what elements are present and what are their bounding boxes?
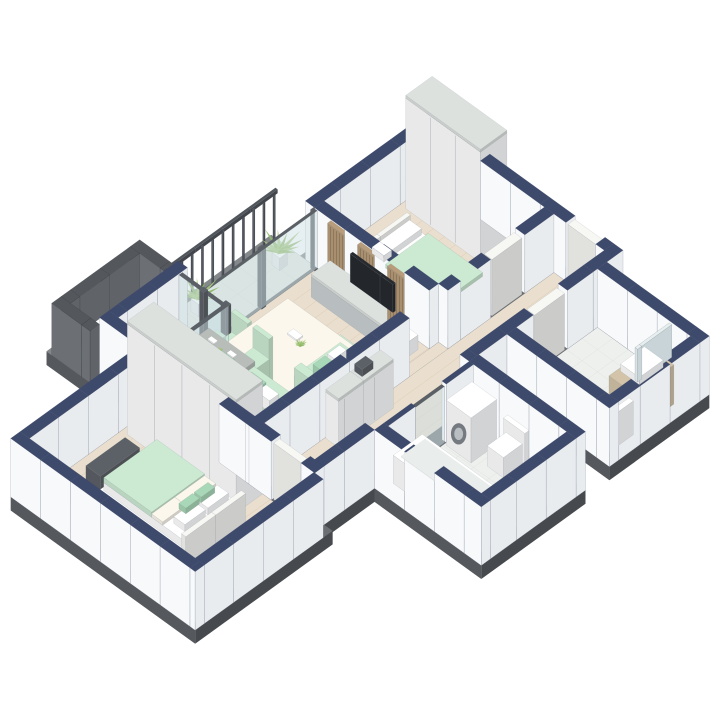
balcony-railing-rail [193,227,222,252]
balcony-railing-rail [221,208,250,233]
balcony-railing-post [242,215,245,263]
balcony-railing-post [211,238,214,286]
wall-wc-south [597,392,619,467]
balcony-railing-post [273,193,276,241]
wall-bedroom1-south [190,561,204,630]
wc-mirror [635,344,642,382]
balcony-railing-post [222,230,225,278]
balcony-railing-post [232,223,235,271]
balcony-railing-post [252,208,255,256]
wall-bedroom2-east-south [439,274,461,349]
wall-bath-south [464,488,490,566]
floor-plan-stage [0,0,720,720]
parapet-utility-south [82,318,100,383]
floor-plan-3d-render [0,0,720,720]
